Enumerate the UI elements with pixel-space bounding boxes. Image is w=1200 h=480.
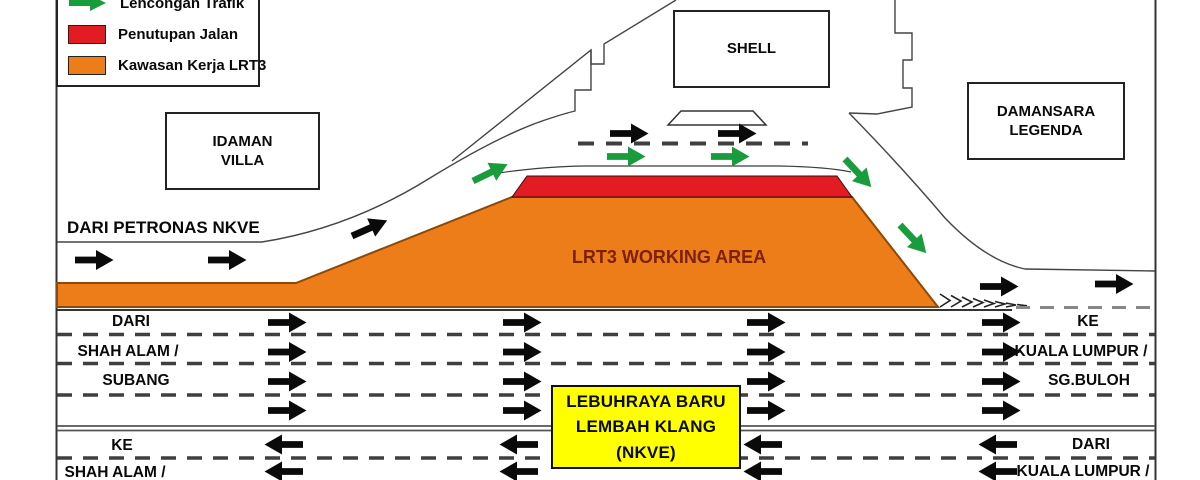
landmark-label: LEGENDA bbox=[1009, 121, 1082, 141]
closed-lane-edge-line bbox=[498, 166, 851, 173]
legend-item-closure: Penutupan Jalan bbox=[68, 22, 258, 46]
nkve-line: LEMBAH KLANG bbox=[576, 414, 716, 440]
lane-label-lower-left-1: KE bbox=[111, 437, 133, 455]
lane-label-lower-right-2: KUALA LUMPUR / bbox=[1017, 463, 1150, 480]
landmark-idaman-villa: IDAMAN VILLA bbox=[165, 112, 320, 190]
traffic-island bbox=[668, 111, 766, 125]
lrt3-working-area-label: LRT3 WORKING AREA bbox=[549, 247, 789, 268]
nkve-line: (NKVE) bbox=[616, 440, 676, 466]
nkve-highway-name-box: LEBUHRAYA BARU LEMBAH KLANG (NKVE) bbox=[551, 385, 741, 469]
diversion-arrow-icon bbox=[68, 0, 108, 13]
lane-label-upper-left-1: DARI bbox=[112, 313, 150, 331]
landmark-damansara-legenda: DAMANSARA LEGENDA bbox=[967, 82, 1125, 160]
lane-label-lower-right-1: DARI bbox=[1072, 436, 1110, 454]
taper-chevrons bbox=[940, 294, 1027, 307]
lane-label-upper-right-1: KE bbox=[1077, 313, 1099, 331]
traffic-diversion-diagram: Lencongan Trafik Penutupan Jalan Kawasan… bbox=[0, 0, 1200, 480]
road-closure-strip bbox=[512, 176, 852, 197]
legend-item-label: Penutupan Jalan bbox=[118, 26, 238, 43]
nkve-line: LEBUHRAYA BARU bbox=[566, 389, 726, 415]
lane-label-lower-left-2: SHAH ALAM / bbox=[64, 464, 165, 480]
work-area-swatch bbox=[68, 56, 106, 75]
landmark-label: IDAMAN bbox=[213, 132, 273, 152]
landmark-label: SHELL bbox=[727, 39, 776, 59]
lane-label-upper-right-3: SG.BULOH bbox=[1048, 372, 1130, 390]
landmark-label: VILLA bbox=[221, 151, 264, 171]
landmark-shell: SHELL bbox=[673, 10, 830, 88]
legend-item-label: Lencongan Trafik bbox=[120, 0, 244, 12]
lane-label-upper-left-3: SUBANG bbox=[102, 372, 169, 390]
lrt3-working-area-shape bbox=[57, 197, 938, 307]
legend: Lencongan Trafik Penutupan Jalan Kawasan… bbox=[56, 0, 260, 87]
road-closure-swatch bbox=[68, 25, 106, 44]
lane-label-upper-left-2: SHAH ALAM / bbox=[77, 343, 178, 361]
lane-label-upper-right-2: KUALA LUMPUR / bbox=[1015, 343, 1148, 361]
legend-item-label: Kawasan Kerja LRT3 bbox=[118, 57, 266, 74]
dari-petronas-nkve-label: DARI PETRONAS NKVE bbox=[67, 218, 260, 238]
landmark-label: DAMANSARA bbox=[997, 102, 1095, 122]
legend-item-diversion: Lencongan Trafik bbox=[68, 0, 258, 15]
legend-item-workarea: Kawasan Kerja LRT3 bbox=[68, 53, 258, 77]
